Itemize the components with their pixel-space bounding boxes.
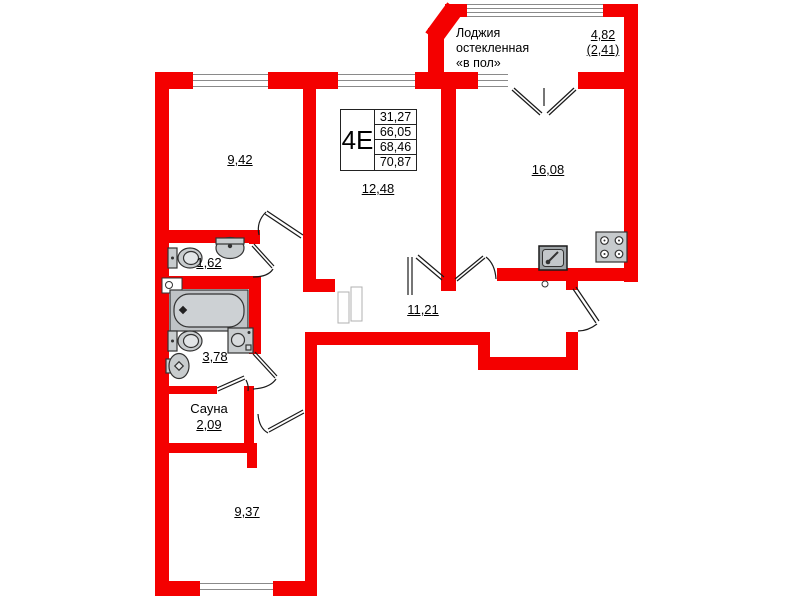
- door-arc: [455, 256, 496, 281]
- window: [478, 74, 508, 87]
- wall: [157, 276, 260, 289]
- window: [200, 583, 273, 595]
- wall: [155, 72, 169, 596]
- wall: [303, 89, 316, 285]
- door-arc: [252, 244, 274, 277]
- loggia-label: Лоджия остекленная «в пол»: [456, 26, 529, 71]
- wall: [441, 89, 456, 291]
- wall: [249, 230, 260, 244]
- double-door: [408, 255, 444, 295]
- wall: [155, 581, 200, 596]
- room-area-label: 1,62: [184, 255, 234, 270]
- window: [338, 74, 415, 87]
- room-area-label: 3,78: [190, 349, 240, 364]
- sauna-label: Сауна: [176, 401, 242, 416]
- wall: [497, 268, 624, 281]
- window: [193, 74, 268, 87]
- wall: [603, 4, 638, 17]
- loggia-area-label: 4,82 (2,41): [576, 28, 630, 58]
- unit-label: 4Е: [341, 110, 375, 170]
- kitchen-sink-icon: [539, 246, 567, 270]
- room-area-label: 16,08: [518, 162, 578, 177]
- room-area-label: 9,37: [220, 504, 274, 519]
- wall: [273, 581, 317, 596]
- stove-icon: [596, 232, 627, 262]
- room-area-label: 2,09: [176, 417, 242, 432]
- wall: [478, 357, 578, 370]
- wall: [157, 443, 255, 453]
- unit-area-row: 66,05: [375, 125, 416, 140]
- loggia-glazing: [467, 4, 603, 17]
- wall: [305, 332, 490, 345]
- plumbing-point: [542, 281, 548, 287]
- unit-area-row: 31,27: [375, 110, 416, 125]
- wardrobe-icon: [338, 287, 362, 323]
- door-arc: [258, 410, 304, 433]
- room-area-label: 11,21: [396, 302, 450, 317]
- wall: [249, 276, 261, 354]
- room-area-label: 9,42: [210, 152, 270, 167]
- bathtub-icon: [170, 290, 248, 331]
- wall: [428, 28, 444, 74]
- wall: [157, 230, 257, 243]
- bidet-icon: [166, 354, 189, 379]
- wall: [157, 386, 217, 394]
- loggia-door: [512, 88, 576, 115]
- wall: [305, 332, 317, 596]
- toilet-icon: [168, 331, 202, 351]
- unit-area-row: 70,87: [375, 155, 416, 170]
- plan-graphics: [0, 0, 800, 600]
- floor-plan: 9,42 12,48 16,08 1,62 3,78 11,21 Сауна 2…: [0, 0, 800, 600]
- unit-area-row: 68,46: [375, 140, 416, 155]
- room-area-label: 12,48: [348, 181, 408, 196]
- wall: [303, 279, 335, 292]
- wall: [445, 4, 467, 17]
- unit-info-table: 4Е 31,27 66,05 68,46 70,87: [340, 109, 417, 171]
- door-arc: [258, 211, 303, 238]
- wall: [247, 443, 257, 468]
- wall: [566, 332, 578, 370]
- wall: [268, 72, 338, 89]
- wall: [415, 72, 478, 89]
- entrance-door-arc: [573, 287, 599, 331]
- door-arc: [253, 352, 277, 389]
